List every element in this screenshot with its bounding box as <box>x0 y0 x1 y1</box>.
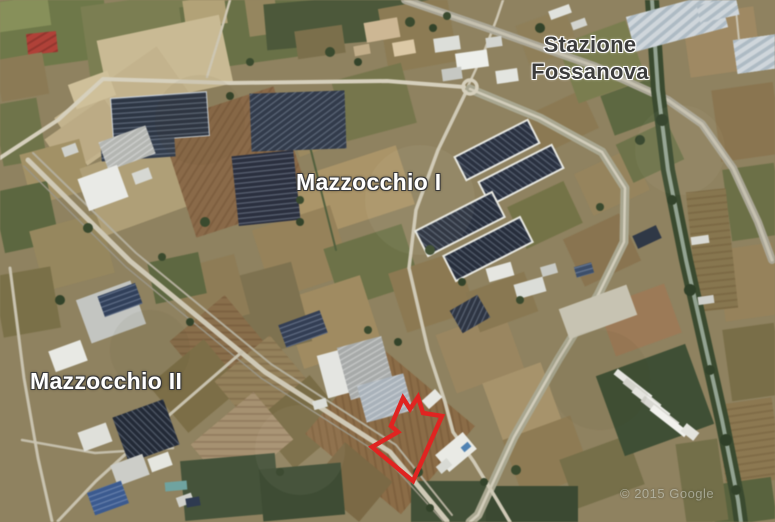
satellite-imagery <box>0 0 775 522</box>
satellite-map[interactable]: Stazione Fossanova Mazzocchio I Mazzocch… <box>0 0 775 522</box>
